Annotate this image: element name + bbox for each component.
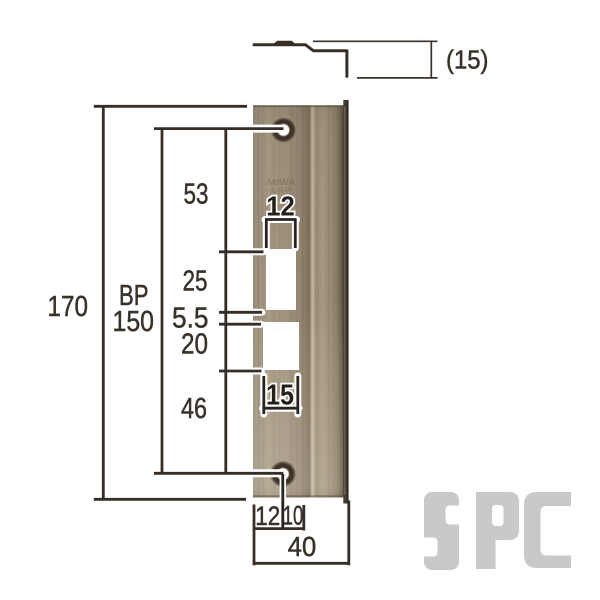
svg-text:46: 46 [181, 393, 207, 425]
svg-text:20: 20 [181, 329, 208, 361]
svg-text:12: 12 [255, 501, 280, 531]
svg-text:53: 53 [184, 179, 209, 211]
svg-text:40: 40 [288, 531, 317, 562]
svg-text:10: 10 [283, 500, 304, 530]
svg-text:MIWA: MIWA [267, 177, 296, 187]
svg-text:15: 15 [266, 380, 294, 412]
svg-text:25: 25 [183, 266, 208, 298]
svg-text:(15): (15) [446, 47, 489, 75]
svg-text:170: 170 [48, 291, 89, 323]
svg-text:150: 150 [113, 306, 155, 338]
svg-text:12: 12 [266, 190, 295, 221]
